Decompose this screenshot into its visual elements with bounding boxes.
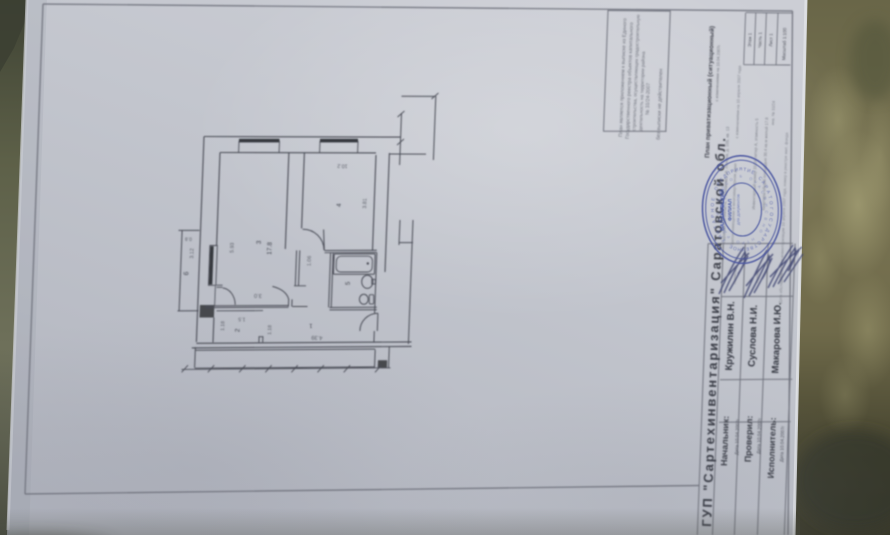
svg-text:Н: Н xyxy=(742,247,746,252)
svg-text:3.12: 3.12 xyxy=(189,248,195,259)
svg-text:4: 4 xyxy=(336,203,343,207)
svg-text:1.18: 1.18 xyxy=(267,325,273,335)
svg-text:1.5: 1.5 xyxy=(238,316,246,322)
svg-text:17.8: 17.8 xyxy=(266,242,273,255)
svg-text:С: С xyxy=(764,211,768,214)
svg-text:3.81: 3.81 xyxy=(362,198,368,209)
svg-text:для документов: для документов xyxy=(736,193,741,225)
svg-text:4.39: 4.39 xyxy=(311,334,322,340)
svg-text:ФИЛИАЛ: ФИЛИАЛ xyxy=(728,198,734,221)
svg-text:инв. № 31/24: инв. № 31/24 xyxy=(770,100,776,125)
svg-text:3: 3 xyxy=(256,240,263,244)
svg-text:1.06: 1.06 xyxy=(307,256,313,267)
svg-text:10.2: 10.2 xyxy=(337,162,348,168)
svg-text:1.18: 1.18 xyxy=(220,321,226,331)
svg-text:Лист 1: Лист 1 xyxy=(768,33,774,47)
svg-text:Проверил:: Проверил: xyxy=(743,415,755,462)
svg-text:5: 5 xyxy=(345,281,352,285)
svg-text:Н: Н xyxy=(710,209,715,213)
svg-text:5.93: 5.93 xyxy=(229,242,235,253)
svg-text:2: 2 xyxy=(234,328,241,332)
svg-text:Этаж 1: Этаж 1 xyxy=(747,32,753,47)
svg-text:Суслова Н.И.: Суслова Н.И. xyxy=(747,305,760,367)
svg-text:Начальник:: Начальник: xyxy=(719,416,731,466)
svg-text:Я: Я xyxy=(739,167,743,172)
svg-text:Часть 1: Часть 1 xyxy=(757,32,763,48)
svg-text:3.0: 3.0 xyxy=(254,292,262,298)
svg-text:№ 31/24-2007: № 31/24-2007 xyxy=(645,83,652,115)
svg-text:БАЛАКОВСКИЙ: БАЛАКОВСКИЙ xyxy=(718,189,726,231)
svg-text:6: 6 xyxy=(183,271,190,275)
svg-text:0.8: 0.8 xyxy=(185,235,192,241)
